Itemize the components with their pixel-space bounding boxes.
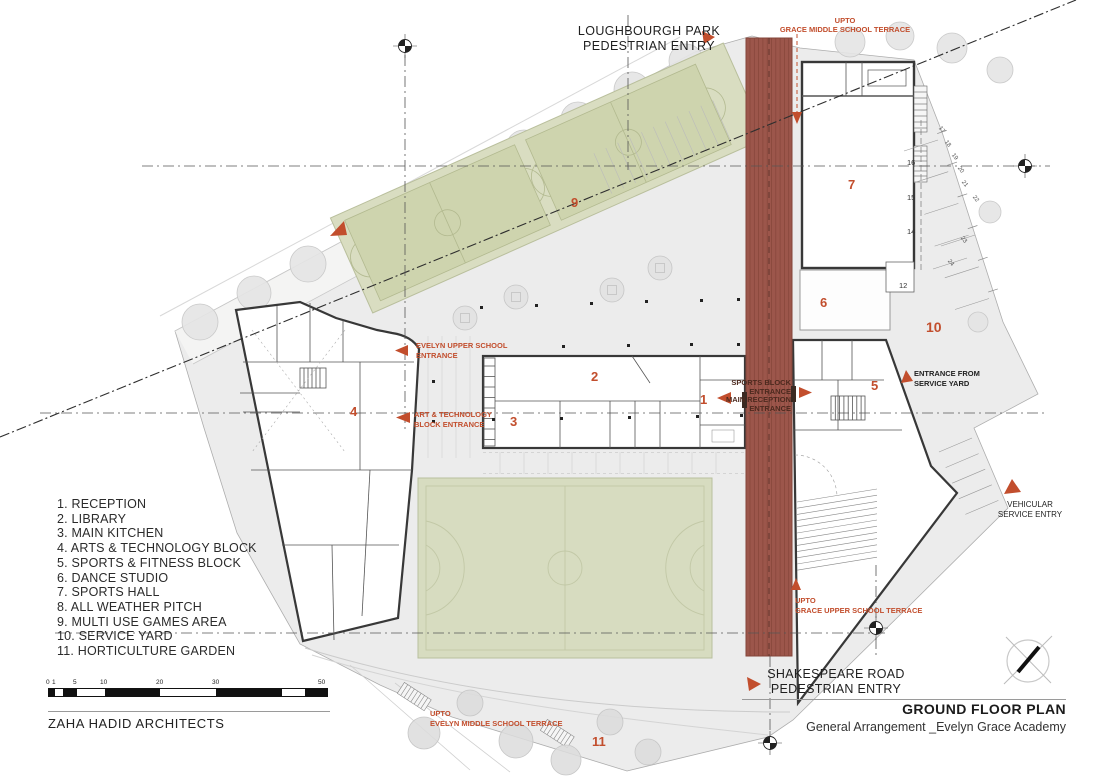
- room-number-service-yard: 10: [926, 319, 942, 335]
- legend-item: 9. MULTI USE GAMES AREA: [57, 615, 257, 630]
- title-divider: [742, 699, 1066, 700]
- scale-tick: 20: [156, 679, 163, 686]
- loughbourgh-park-entry-label: LOUGHBOURGH PARK PEDESTRIAN ENTRY: [578, 24, 720, 53]
- firm-divider: [48, 711, 330, 712]
- scale-tick: 10: [100, 679, 107, 686]
- room-legend: 1. RECEPTION 2. LIBRARY 3. MAIN KITCHEN …: [57, 497, 257, 659]
- room-number-muga: 9: [571, 195, 578, 210]
- legend-item: 3. MAIN KITCHEN: [57, 526, 257, 541]
- upto-evelyn-middle-label: UPTO EVELYN MIDDLE SCHOOL TERRACE: [430, 709, 563, 728]
- legend-item: 10. SERVICE YARD: [57, 629, 257, 644]
- legend-item: 2. LIBRARY: [57, 512, 257, 527]
- grid-number-15: 15: [907, 193, 915, 202]
- evelyn-upper-entrance-label: EVELYN UPPER SCHOOL ENTRANCE: [416, 341, 507, 361]
- floor-plan-sheet: LOUGHBOURGH PARK PEDESTRIAN ENTRY UPTO G…: [0, 0, 1100, 777]
- north-arrow-icon: [1004, 636, 1052, 684]
- room-number-main-kitchen: 3: [510, 414, 517, 429]
- room-number-sports-hall: 7: [848, 177, 855, 192]
- room-number-sports-fitness: 5: [871, 378, 878, 393]
- legend-item: 4. ARTS & TECHNOLOGY BLOCK: [57, 541, 257, 556]
- art-tech-entrance-label: ART & TECHNOLOGY BLOCK ENTRANCE: [414, 410, 492, 430]
- room-number-arts-tech: 4: [350, 404, 357, 419]
- legend-item: 7. SPORTS HALL: [57, 585, 257, 600]
- scale-tick: 30: [212, 679, 219, 686]
- legend-item: 6. DANCE STUDIO: [57, 571, 257, 586]
- upto-grace-upper-label: UPTO GRACE UPPER SCHOOL TERRACE: [795, 596, 922, 615]
- room-number-library: 2: [591, 369, 598, 384]
- running-track-strip: [742, 38, 796, 656]
- room-number-dance-studio: 6: [820, 295, 827, 310]
- scale-tick: 5: [73, 679, 77, 686]
- scale-tick: 1: [52, 679, 56, 686]
- scale-bar: [48, 688, 328, 697]
- scale-tick: 0: [46, 679, 50, 686]
- page-subtitle: General Arrangement _Evelyn Grace Academ…: [806, 720, 1066, 734]
- legend-item: 1. RECEPTION: [57, 497, 257, 512]
- title-block: GROUND FLOOR PLAN General Arrangement _E…: [806, 701, 1066, 734]
- vehicular-arrow-icon: [1004, 479, 1021, 494]
- vehicular-service-entry-label: VEHICULAR SERVICE ENTRY: [998, 500, 1062, 520]
- legend-item: 5. SPORTS & FITNESS BLOCK: [57, 556, 257, 571]
- upto-grace-middle-label: UPTO GRACE MIDDLE SCHOOL TERRACE: [780, 16, 910, 34]
- scale-tick: 50: [318, 679, 325, 686]
- plan-drawing: [0, 0, 1100, 777]
- entrance-from-service-yard-label: ENTRANCE FROM SERVICE YARD: [914, 369, 980, 388]
- firm-name: ZAHA HADID ARCHITECTS: [48, 716, 225, 731]
- grid-number-12: 12: [899, 281, 907, 290]
- room-number-horticulture: 11: [592, 734, 606, 749]
- page-title: GROUND FLOOR PLAN: [806, 701, 1066, 717]
- legend-item: 8. ALL WEATHER PITCH: [57, 600, 257, 615]
- grid-number-14: 14: [907, 227, 915, 236]
- legend-item: 11. HORTICULTURE GARDEN: [57, 644, 257, 659]
- shakespeare-road-entry-label: SHAKESPEARE ROAD PEDESTRIAN ENTRY: [767, 667, 904, 697]
- room-number-reception: 1: [700, 392, 707, 407]
- grid-number-16: 16: [907, 158, 915, 167]
- all-weather-pitch: [418, 478, 712, 658]
